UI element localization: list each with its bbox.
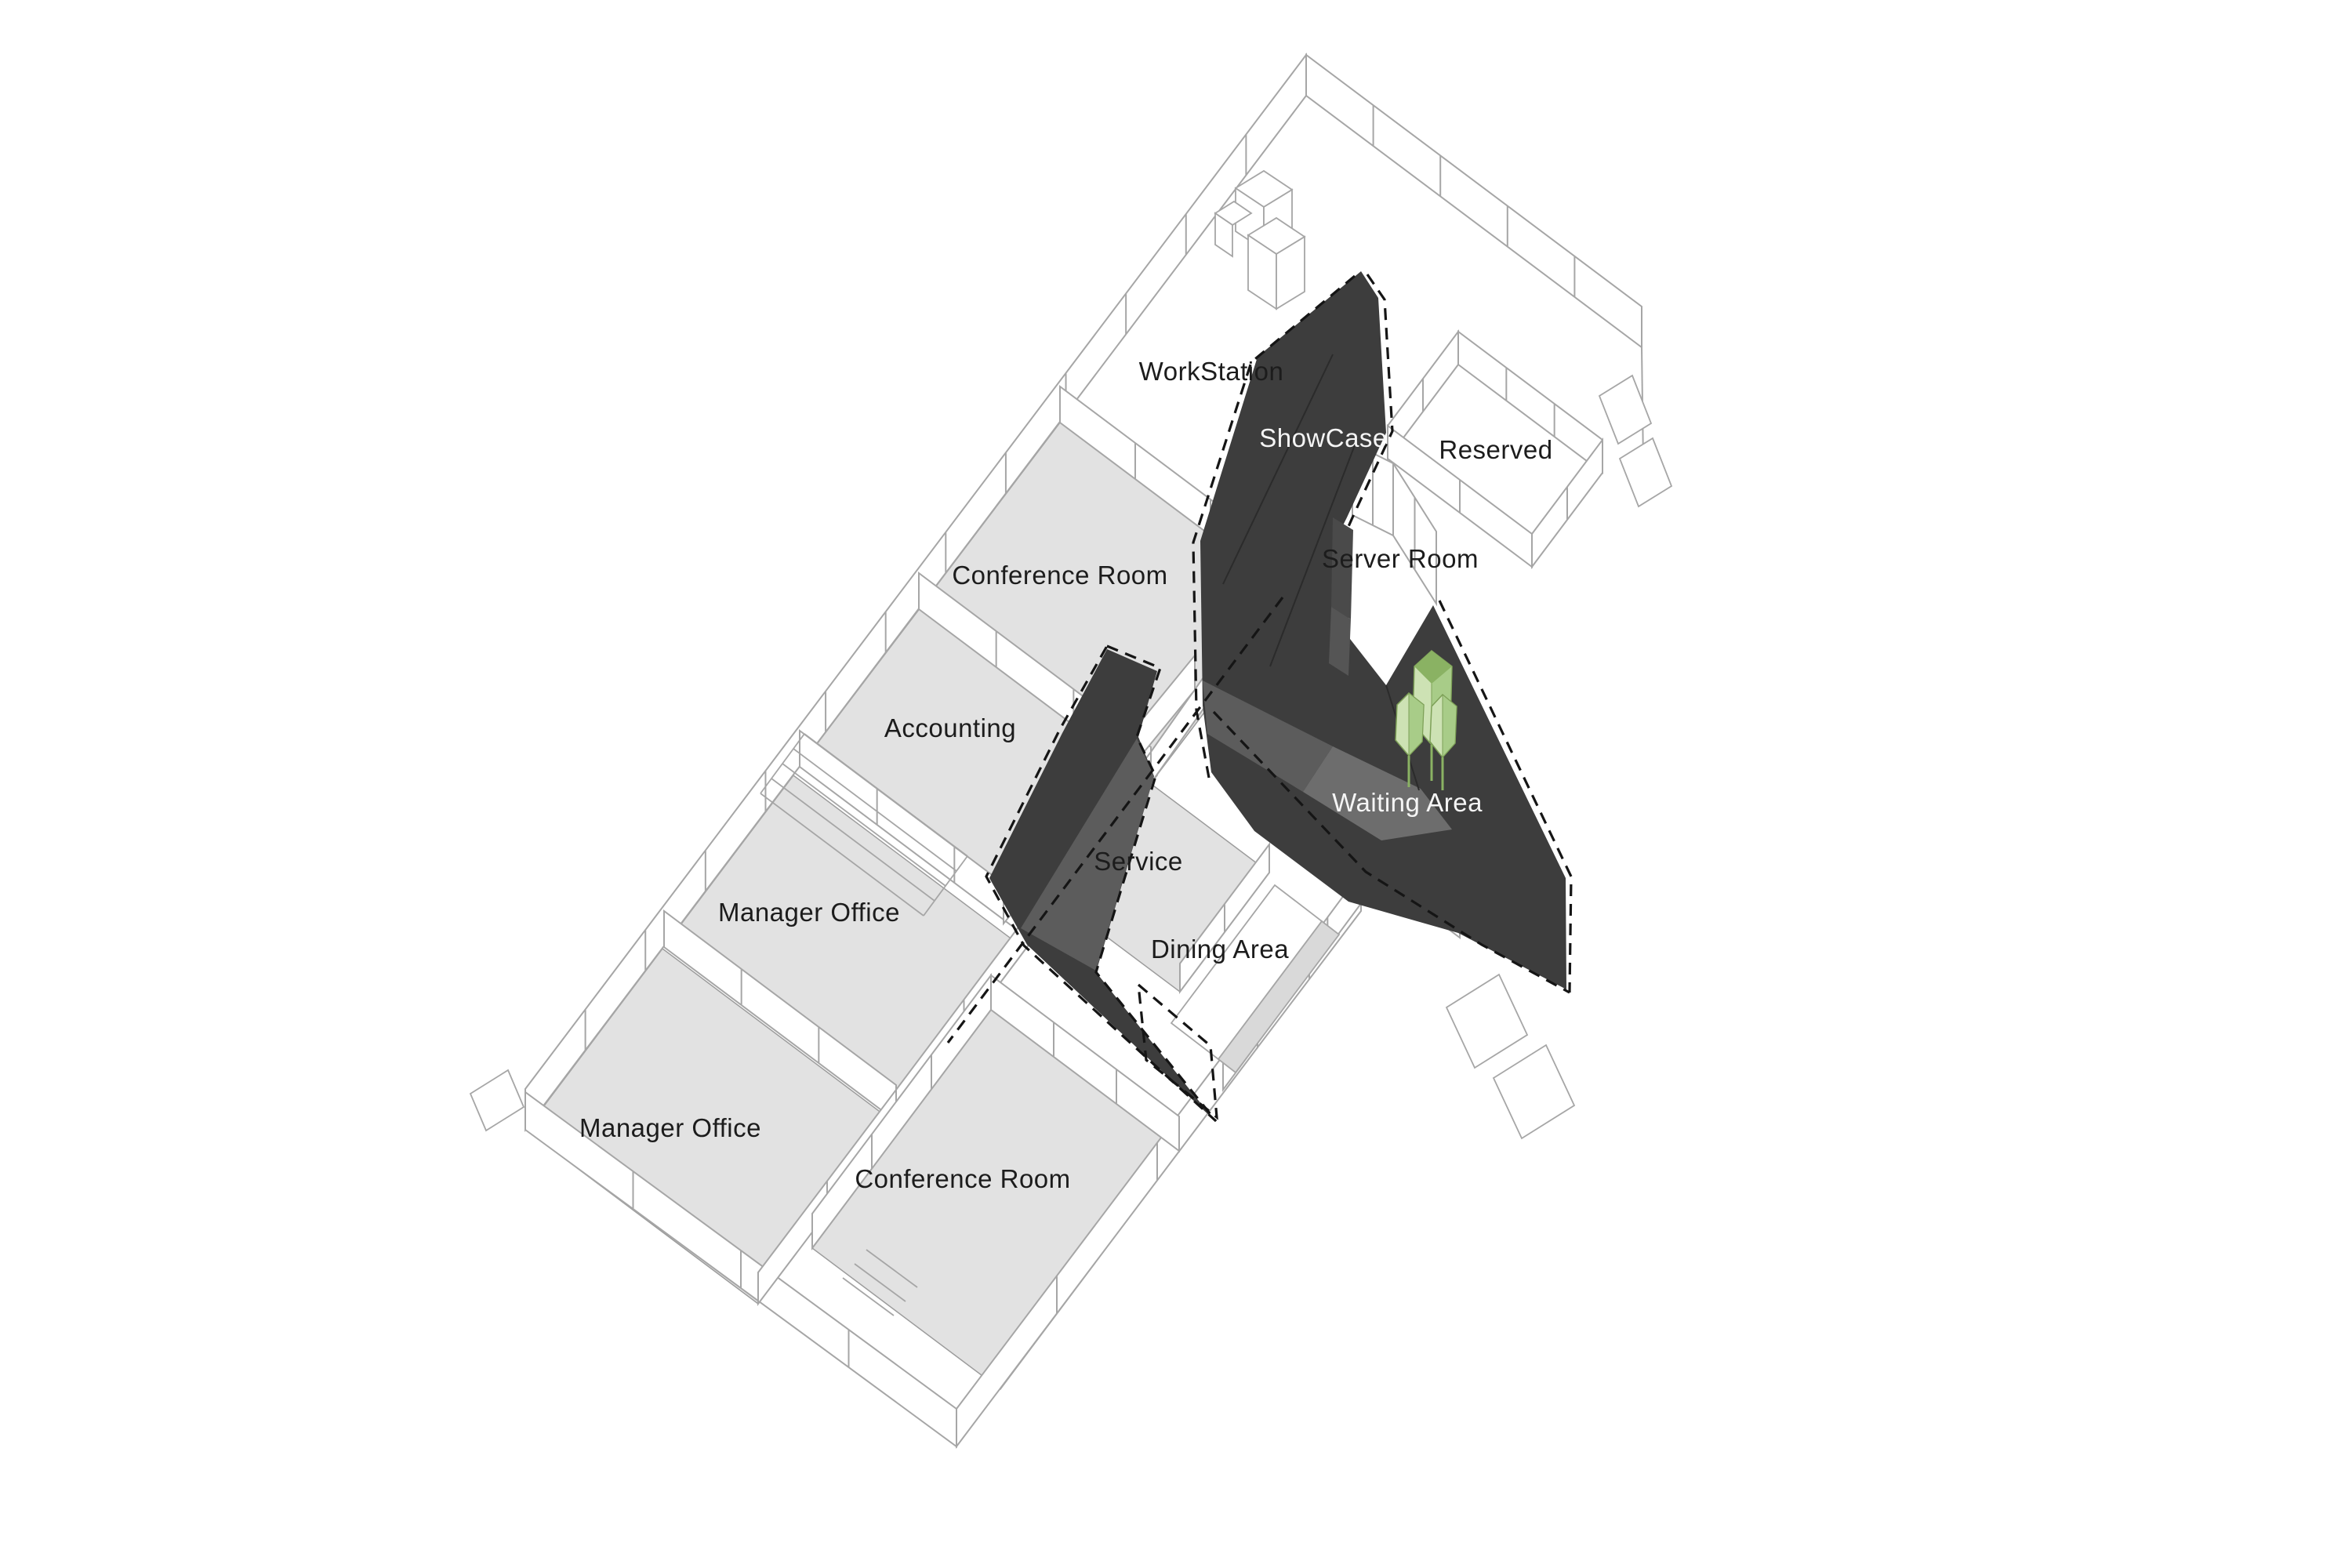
room-label-accounting: Accounting <box>884 713 1016 742</box>
door-panel <box>470 1070 524 1131</box>
room-label-server-room: Server Room <box>1322 544 1479 573</box>
room-label-conference-room-upper: Conference Room <box>952 561 1167 590</box>
room-floors <box>526 423 1292 1389</box>
room-label-reserved: Reserved <box>1439 435 1552 464</box>
room-label-showcase: ShowCase <box>1259 423 1388 452</box>
room-label-waiting-area: Waiting Area <box>1332 788 1483 817</box>
room-label-service: Service <box>1094 847 1183 876</box>
door-panel <box>1494 1045 1574 1138</box>
room-label-manager-office-upper: Manager Office <box>718 898 900 927</box>
room-label-dining-area: Dining Area <box>1151 935 1289 964</box>
room-label-conference-room-lower: Conference Room <box>855 1164 1070 1193</box>
door-panel <box>1620 438 1671 506</box>
room-label-manager-office-lower: Manager Office <box>579 1113 761 1142</box>
door-panel <box>1446 975 1527 1068</box>
room-label-workstation: WorkStation <box>1139 357 1284 386</box>
axonometric-scene: WorkStation ShowCase Reserved Server Roo… <box>0 0 2352 1568</box>
